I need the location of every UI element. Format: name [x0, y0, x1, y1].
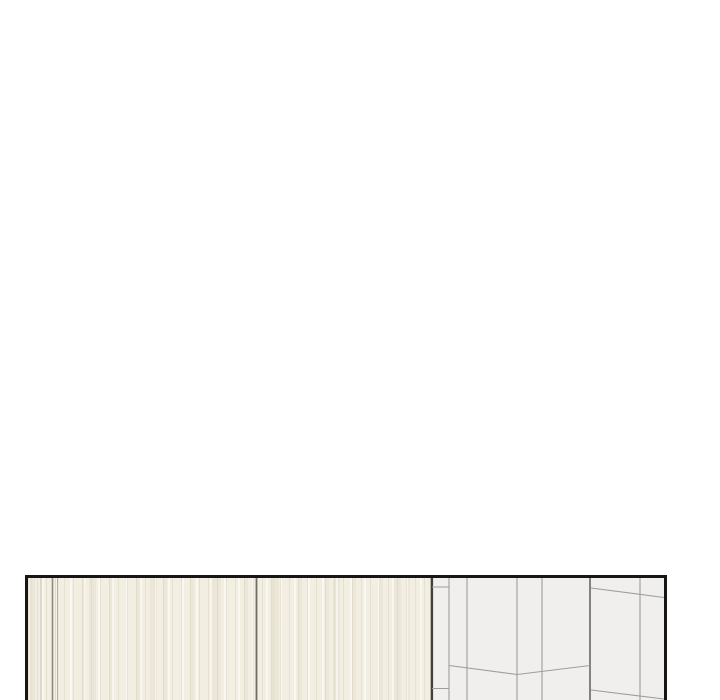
tile-grout-chevron [449, 666, 590, 675]
comic-panel [25, 575, 667, 700]
tile-grout-slant [591, 690, 664, 699]
panel-interior [28, 578, 664, 700]
tile-grout-slant [591, 588, 664, 598]
blank-comic-page [0, 0, 720, 700]
panel-line-art [28, 578, 664, 700]
